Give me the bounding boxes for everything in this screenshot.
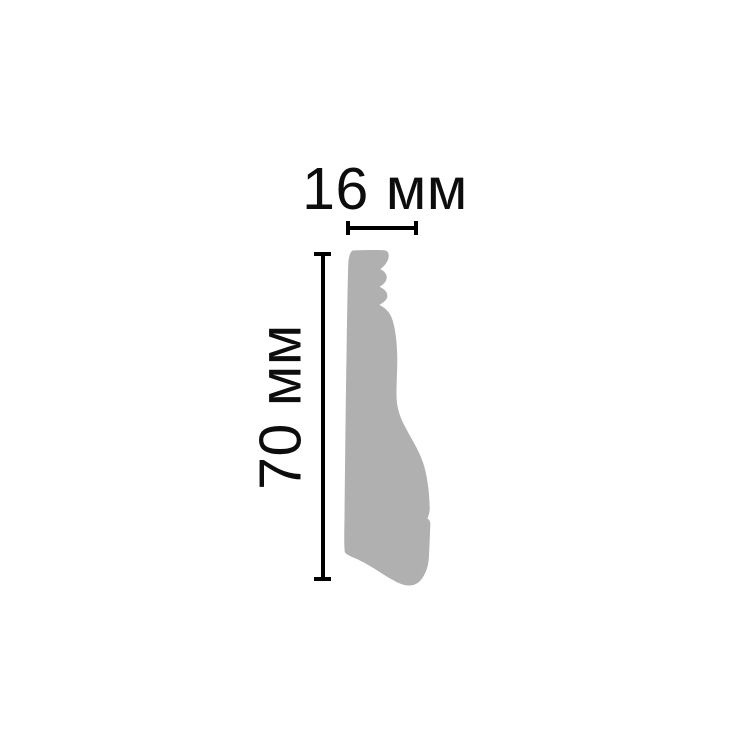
diagram-canvas: 16 мм 70 мм: [0, 0, 750, 750]
molding-profile-shape: [0, 0, 750, 750]
molding-profile-path: [344, 250, 430, 586]
